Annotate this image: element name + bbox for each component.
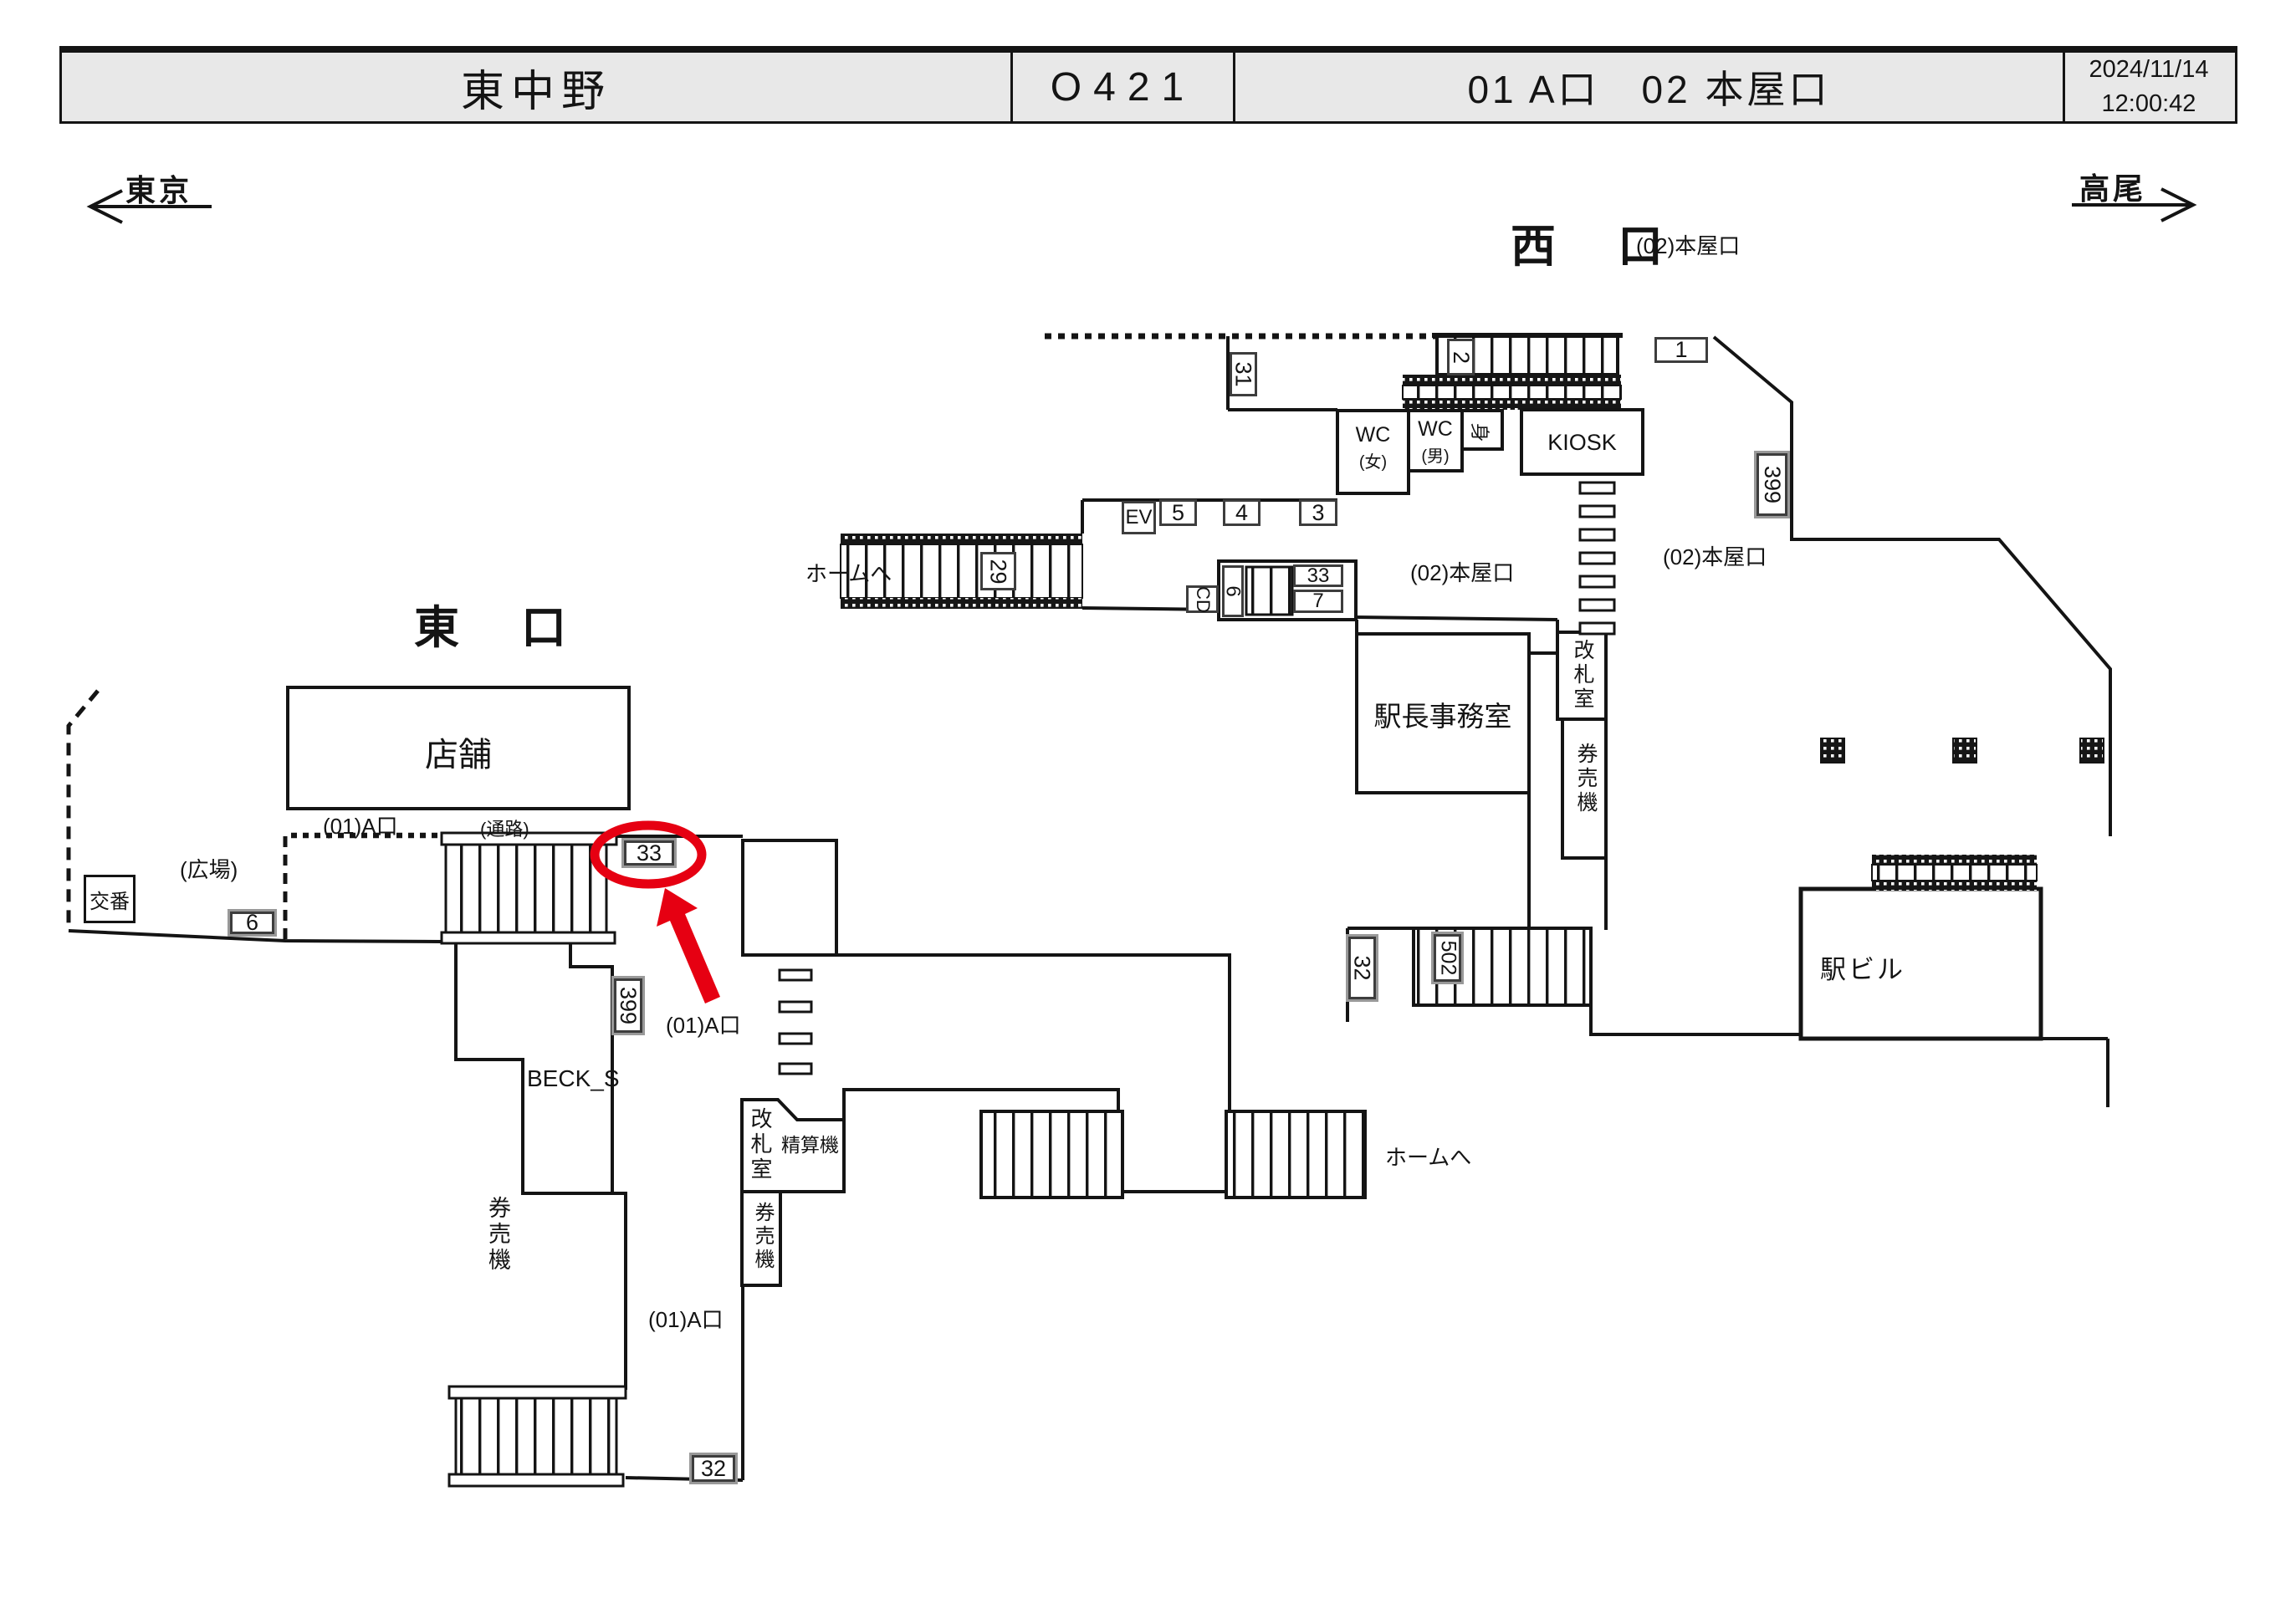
koban-box: 交番 <box>84 875 136 923</box>
honya-exit-center-label: (02)本屋口 <box>1410 556 1514 587</box>
pos-box-33-west[interactable]: 33 <box>1293 564 1343 587</box>
pos-box-32-west[interactable]: 32 <box>1348 937 1376 999</box>
ticket-machine-east-label: 券売機 <box>748 1202 777 1272</box>
stationmaster-office-label: 駅長事務室 <box>1365 694 1521 734</box>
datetime: 2024/11/14 12:00:42 <box>2065 53 2232 121</box>
kiosk-label: KIOSK <box>1521 430 1643 456</box>
west-exit-note: (02)本屋口 <box>1636 229 1740 260</box>
wc-male-label: WC(男) <box>1409 416 1462 469</box>
header-bar: 東中野 O421 01 A口 02 本屋口 2024/11/14 12:00:4… <box>59 46 2237 124</box>
a-exit-mid-label: (01)A口 <box>666 1009 741 1039</box>
station-code: O421 <box>1013 53 1235 121</box>
plaza-label: (広場) <box>180 853 238 884</box>
pos-box-399-east[interactable]: 399 <box>614 978 642 1033</box>
pos-box-399-west[interactable]: 399 <box>1757 453 1787 516</box>
station-name: 東中野 <box>62 53 1013 121</box>
pos-box-32-east[interactable]: 32 <box>692 1455 735 1482</box>
direction-tokyo: 東京 <box>125 166 192 210</box>
wc-female-label: WC(女) <box>1337 422 1409 475</box>
koban-label: 交番 <box>89 885 130 914</box>
highlight-arrow-icon <box>657 888 720 1004</box>
pos-box-29[interactable]: 29 <box>980 552 1016 590</box>
a-exit-lower-label: (01)A口 <box>648 1303 724 1334</box>
pos-box-502[interactable]: 502 <box>1434 934 1461 982</box>
pos-box-2[interactable]: 2 <box>1447 339 1475 375</box>
honya-exit-right-label: (02)本屋口 <box>1663 540 1767 571</box>
direction-takao: 高尾 <box>2079 165 2146 208</box>
date-text: 2024/11/14 <box>2089 53 2209 87</box>
ticket-machine-west-label: 券売機 <box>1571 743 1601 815</box>
beck-shop-label: BECK_S <box>527 1065 620 1092</box>
pos-box-6-east[interactable]: 6 <box>230 912 274 934</box>
pos-box-5[interactable]: 5 <box>1159 499 1197 526</box>
station-building-label: 駅ビル <box>1820 948 1905 986</box>
fare-adjust-label: 精算機 <box>781 1129 839 1157</box>
a-exit-upper-label: (01)A口 <box>323 809 398 840</box>
pos-box-1[interactable]: 1 <box>1654 337 1708 363</box>
station-map-screen: 東中野 O421 01 A口 02 本屋口 2024/11/14 12:00:4… <box>0 0 2296 1624</box>
pos-box-3[interactable]: 3 <box>1299 499 1337 526</box>
shop-label: 店舗 <box>333 728 584 776</box>
gate-office-west-label: 改札室 <box>1567 639 1598 712</box>
accessible-label: 身 <box>1468 423 1496 442</box>
pos-box-7[interactable]: 7 <box>1293 590 1343 613</box>
exit-list: 01 A口 02 本屋口 <box>1235 53 2065 121</box>
to-platform-west-label: ホームへ <box>805 557 892 588</box>
ticket-machine-east-left-label: 券売機 <box>482 1196 514 1274</box>
gate-office-east-label: 改札室 <box>745 1107 776 1182</box>
pos-box-ev[interactable]: EV <box>1122 501 1156 534</box>
to-platform-east-label: ホームへ <box>1385 1141 1471 1172</box>
pos-box-33-east-highlighted[interactable]: 33 <box>624 840 674 866</box>
pos-box-4[interactable]: 4 <box>1223 499 1260 526</box>
pos-box-cd[interactable]: CD <box>1186 585 1219 613</box>
east-exit-label: 東 口 <box>414 590 575 656</box>
pos-box-31[interactable]: 31 <box>1230 352 1257 396</box>
pos-box-6-west[interactable]: 6 <box>1222 565 1244 617</box>
passage-label: (通路) <box>480 815 529 841</box>
time-text: 12:00:42 <box>2102 87 2196 121</box>
